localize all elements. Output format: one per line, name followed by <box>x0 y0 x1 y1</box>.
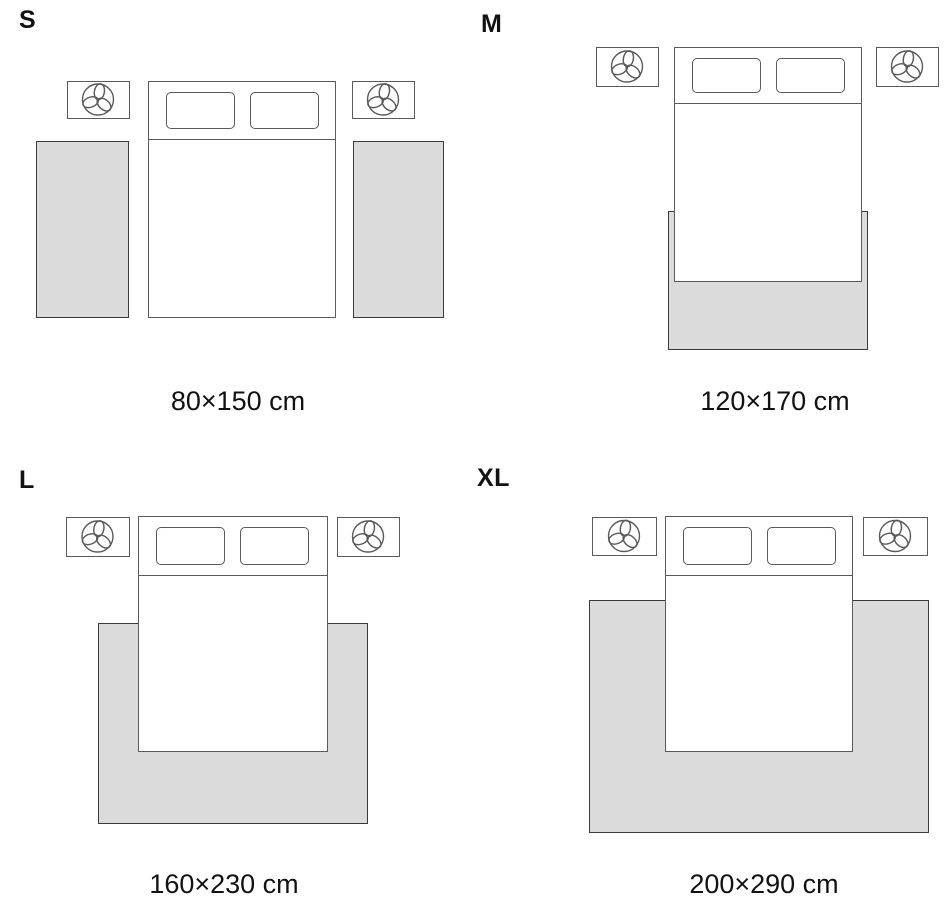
plant-top-view-icon <box>353 82 413 117</box>
nightstand-right <box>337 517 400 557</box>
size-letter-m: M <box>481 12 502 37</box>
bed-headboard <box>666 517 852 576</box>
rug-size-label-s: 80×150 cm <box>88 388 388 418</box>
pillow-right <box>240 527 309 565</box>
rug-size-guide-diagram: S80×150 cmM120×170 cmL160×230 cmXL200×29… <box>0 0 950 900</box>
rug-s-left <box>36 141 129 318</box>
plant-top-view-icon <box>864 518 926 554</box>
pillow-right <box>776 58 845 93</box>
rug-size-label-m: 120×170 cm <box>625 388 925 418</box>
pillow-left <box>692 58 761 93</box>
pillow-right <box>767 527 836 565</box>
bed <box>138 516 328 752</box>
rug-size-label-l: 160×230 cm <box>74 871 374 900</box>
plant-top-view-icon <box>338 518 398 555</box>
plant-top-view-icon <box>68 82 128 117</box>
nightstand-right <box>352 81 415 119</box>
nightstand-left <box>66 517 130 557</box>
plant-top-view-icon <box>597 48 657 85</box>
pillow-left <box>156 527 225 565</box>
nightstand-right <box>863 517 928 556</box>
bed <box>148 81 336 318</box>
size-letter-s: S <box>19 8 36 33</box>
plant-top-view-icon <box>67 518 128 555</box>
bed-headboard <box>149 82 335 140</box>
bed <box>674 47 862 282</box>
bed-headboard <box>675 48 861 104</box>
plant-top-view-icon <box>593 518 655 554</box>
nightstand-right <box>876 47 939 87</box>
pillow-left <box>166 92 235 129</box>
bed-headboard <box>139 517 327 576</box>
rug-s-right <box>353 141 444 318</box>
nightstand-left <box>67 81 130 119</box>
size-letter-xl: XL <box>477 466 510 491</box>
pillow-left <box>683 527 752 565</box>
plant-top-view-icon <box>877 48 937 85</box>
size-letter-l: L <box>19 468 35 493</box>
bed <box>665 516 853 752</box>
nightstand-left <box>596 47 659 87</box>
rug-size-label-xl: 200×290 cm <box>614 871 914 900</box>
pillow-right <box>250 92 319 129</box>
nightstand-left <box>592 517 657 556</box>
